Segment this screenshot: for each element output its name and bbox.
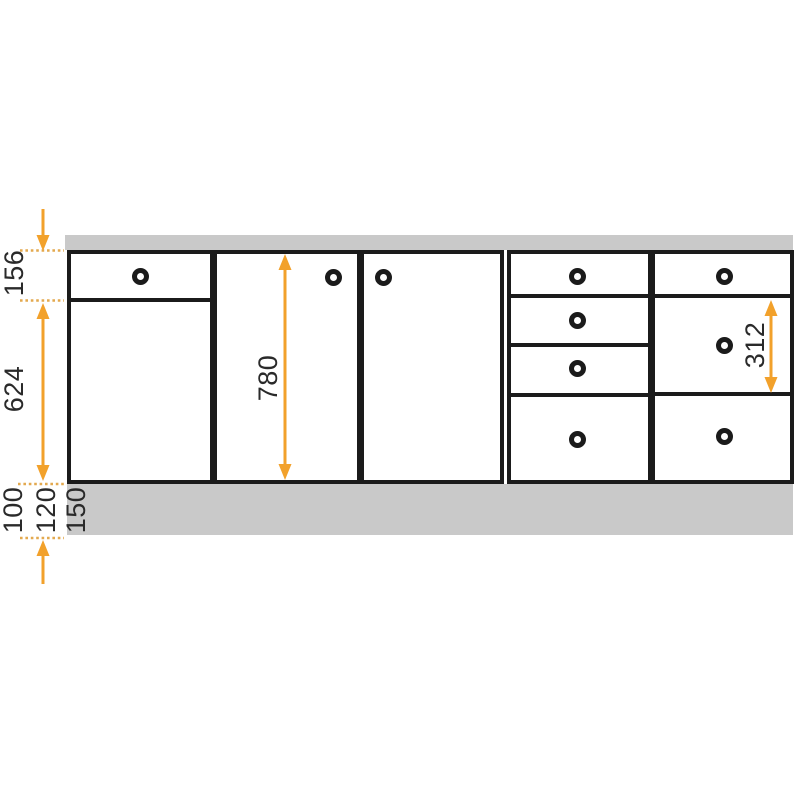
dim-label-156: 156 xyxy=(0,213,30,333)
knob-icon xyxy=(132,268,149,285)
cabinet-1-drawer-over-door xyxy=(67,250,214,484)
knob-icon xyxy=(569,360,586,377)
plinth-band xyxy=(67,484,793,535)
cabinet-elevation-diagram: 156 624 100 120 150 780 312 xyxy=(0,0,800,800)
cabinet-2-tall-door xyxy=(213,250,361,484)
cabinet-4-divider-1 xyxy=(511,294,648,298)
dim-label-312: 312 xyxy=(739,285,771,405)
knob-icon xyxy=(569,431,586,448)
knob-icon xyxy=(716,428,733,445)
countertop-band xyxy=(65,235,793,250)
knob-icon xyxy=(569,312,586,329)
knob-icon xyxy=(569,268,586,285)
dim-label-150: 150 xyxy=(60,450,92,570)
dim-label-780: 780 xyxy=(252,318,284,438)
knob-icon xyxy=(375,269,392,286)
dim-label-624: 624 xyxy=(0,329,30,449)
knob-icon xyxy=(325,269,342,286)
knob-icon xyxy=(716,337,733,354)
cabinet-4-divider-2 xyxy=(511,343,648,347)
cabinet-5-three-drawers xyxy=(651,250,794,484)
cabinet-1-drawer-divider xyxy=(71,298,210,302)
dim-label-100: 100 xyxy=(0,450,29,570)
cabinet-4-divider-3 xyxy=(511,393,648,397)
knob-icon xyxy=(716,268,733,285)
dim-label-120: 120 xyxy=(30,450,62,570)
